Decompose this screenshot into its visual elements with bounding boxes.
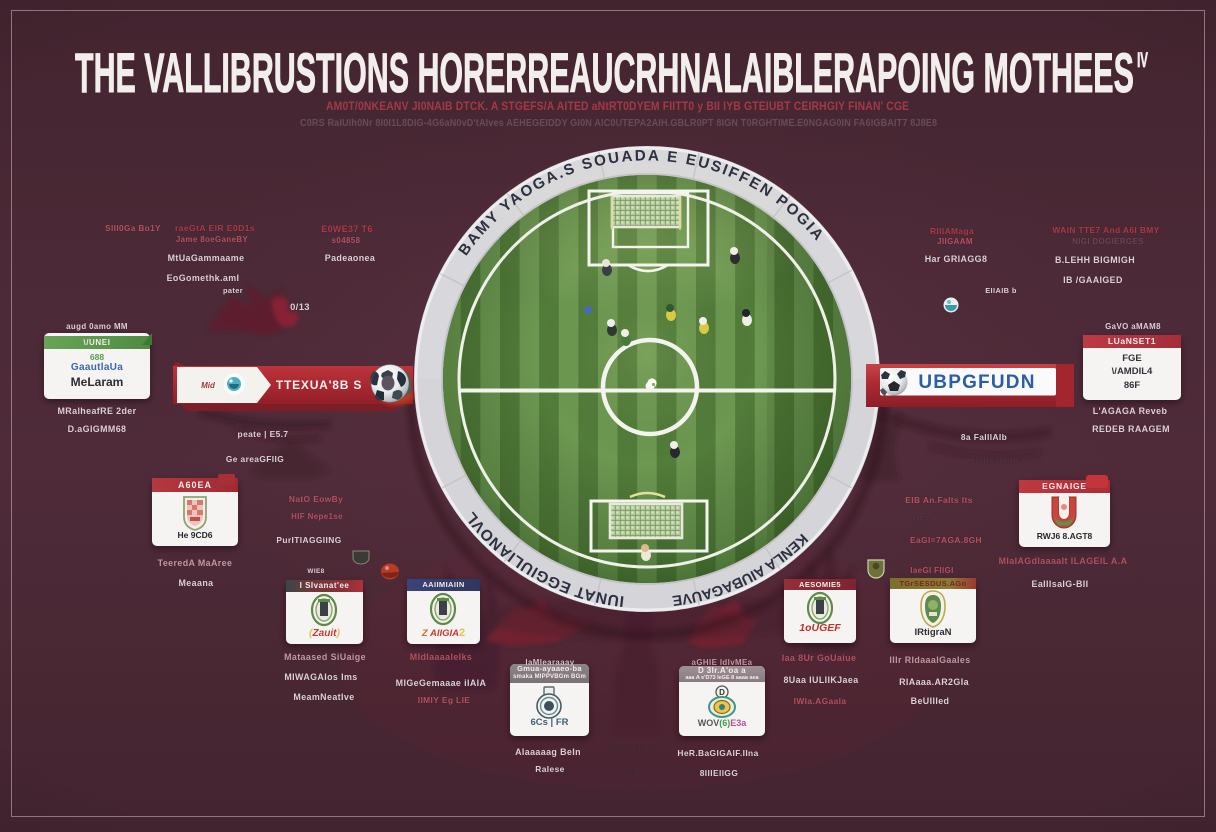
svg-text:UBPGFUDN: UBPGFUDN xyxy=(918,372,1035,393)
svg-text:TTEXUA'8B S: TTEXUA'8B S xyxy=(276,378,362,392)
svg-text:Mid: Mid xyxy=(201,381,216,390)
svg-text:D: D xyxy=(719,688,725,697)
